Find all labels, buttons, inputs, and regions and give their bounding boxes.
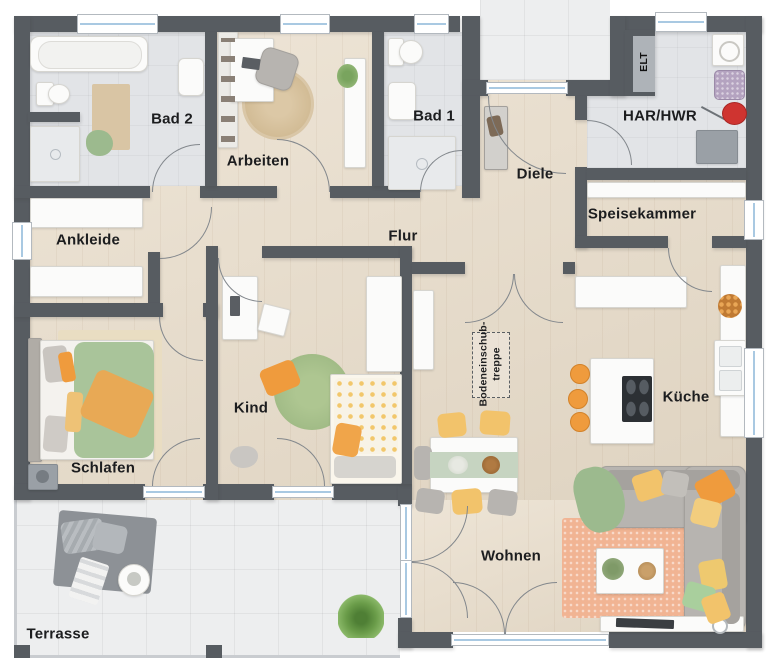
- vacuum-cleaner: [722, 102, 747, 125]
- wall-bad2-stub: [28, 112, 80, 122]
- terrace-post: [206, 645, 222, 658]
- cooktop: [622, 376, 652, 422]
- room-label-har-hwr: HAR/HWR: [623, 108, 697, 125]
- label-attic-hatch: Bodeneinschub- treppe: [477, 321, 502, 406]
- wall-flur-south: [262, 246, 412, 258]
- room-label-terrasse: Terrasse: [26, 626, 89, 643]
- french-door-west-top: [400, 504, 412, 562]
- bar-stool: [570, 412, 590, 432]
- table-flowers: [448, 456, 468, 474]
- coffee-table-plant: [602, 558, 624, 580]
- table-bowl: [482, 456, 500, 474]
- wall-hall-north-a: [14, 186, 150, 198]
- toilet-bad1-bowl: [399, 40, 423, 64]
- room-label-arbeiten: Arbeiten: [227, 153, 289, 170]
- desk-monitor: [241, 57, 260, 70]
- pantry-shelf: [587, 182, 746, 198]
- room-label-schlafen: Schlafen: [71, 460, 135, 477]
- wardrobe-kind: [366, 276, 402, 372]
- patio-door-window-band: [451, 634, 609, 646]
- wall-right: [746, 16, 762, 648]
- label-attic-line2: treppe: [490, 321, 503, 406]
- window-kitchen-tall: [744, 348, 764, 438]
- door-schlafen-terrace-leaf: [143, 486, 205, 498]
- fruit-bowl: [718, 294, 742, 318]
- wall-diele-east-a: [575, 96, 587, 120]
- table-runner: [430, 452, 518, 478]
- wall-bad2-arbeiten: [205, 32, 217, 186]
- wardrobe-ankleide-bottom: [30, 266, 143, 297]
- dining-chair-gray: [487, 488, 519, 516]
- bathtub-basin: [38, 41, 142, 69]
- bar-stool: [568, 389, 588, 409]
- nightstand-deco: [36, 470, 49, 483]
- wall-pantry-south-b: [712, 236, 746, 248]
- wall-living-south-a: [398, 632, 453, 648]
- wall-har-south: [587, 168, 746, 180]
- window-ankleide: [12, 222, 32, 260]
- plant-terrace: [338, 594, 384, 638]
- terrace-post: [14, 645, 30, 658]
- terrace-edge-left: [14, 500, 17, 658]
- cushion-gray: [660, 470, 690, 498]
- dining-chair-yellow: [479, 410, 511, 436]
- sink-bad1: [388, 82, 416, 120]
- dining-chair-yellow: [437, 412, 467, 439]
- towel-green: [86, 130, 113, 156]
- wall-ankleide-schlafen: [14, 303, 163, 317]
- bed-kind-pillows: [334, 456, 396, 478]
- wall-living-south-b: [609, 632, 762, 648]
- laundry-basket: [714, 70, 745, 100]
- bed-kind-throw: [331, 422, 362, 458]
- kitchen-sink-basin: [719, 346, 742, 367]
- coffee-table-tray: [638, 562, 656, 580]
- sink-bad2: [178, 58, 204, 96]
- room-label-flur: Flur: [388, 228, 417, 245]
- label-attic-line1: Bodeneinschub-: [477, 321, 490, 406]
- room-label-diele: Diele: [517, 166, 554, 183]
- floor-plan: Bad 2 Arbeiten Bad 1 Diele ELT HAR/HWR S…: [0, 0, 775, 670]
- storage-box: [696, 130, 738, 164]
- window-bad1: [414, 14, 449, 34]
- room-label-kind: Kind: [234, 400, 268, 417]
- room-label-bad2: Bad 2: [151, 111, 193, 128]
- toilet-bad2-bowl: [48, 84, 70, 104]
- room-label-speisekammer: Speisekammer: [588, 206, 696, 223]
- french-door-west-bottom: [400, 560, 412, 618]
- wall-living-west-a: [398, 484, 412, 506]
- cabinet-wohnen: [413, 290, 434, 370]
- wardrobe-ankleide-top: [30, 198, 143, 228]
- room-label-kueche: Küche: [663, 389, 710, 406]
- terrace-table-deco: [127, 572, 141, 586]
- wall-entry-a: [462, 80, 488, 96]
- room-label-elt: ELT: [638, 52, 650, 72]
- plant-arbeiten: [337, 64, 358, 88]
- bookshelf-books: [221, 38, 235, 142]
- bar-stool: [570, 364, 590, 384]
- room-label-ankleide: Ankleide: [56, 232, 120, 249]
- room-label-wohnen: Wohnen: [481, 548, 541, 565]
- kitchen-counter-top: [575, 276, 687, 308]
- washing-machine-door: [719, 41, 740, 62]
- window-pantry-kitchen: [744, 200, 764, 240]
- room-label-bad1: Bad 1: [413, 108, 455, 125]
- kitchen-sink-basin: [719, 370, 742, 391]
- wall-hall-north-b: [200, 186, 277, 198]
- wall-wohnen-north-a: [412, 262, 465, 274]
- window-har-hwr: [655, 12, 707, 32]
- wall-porch-right: [610, 16, 625, 96]
- porch-floor: [480, 0, 610, 80]
- wall-ankleide-east: [148, 252, 160, 303]
- window-arbeiten: [280, 14, 330, 34]
- wall-arbeiten-bad1: [372, 32, 384, 186]
- desk-kind-monitor: [230, 296, 240, 316]
- shower-bad2-drain: [50, 149, 61, 160]
- wall-pantry-south-a: [575, 236, 668, 248]
- window-bad2: [77, 14, 158, 34]
- wall-kind-west: [206, 246, 218, 500]
- wall-wohnen-north-b: [563, 262, 575, 274]
- door-kind-terrace-leaf: [272, 486, 334, 498]
- entry-door-leaf: [486, 82, 568, 94]
- wall-bad1-east: [462, 96, 480, 198]
